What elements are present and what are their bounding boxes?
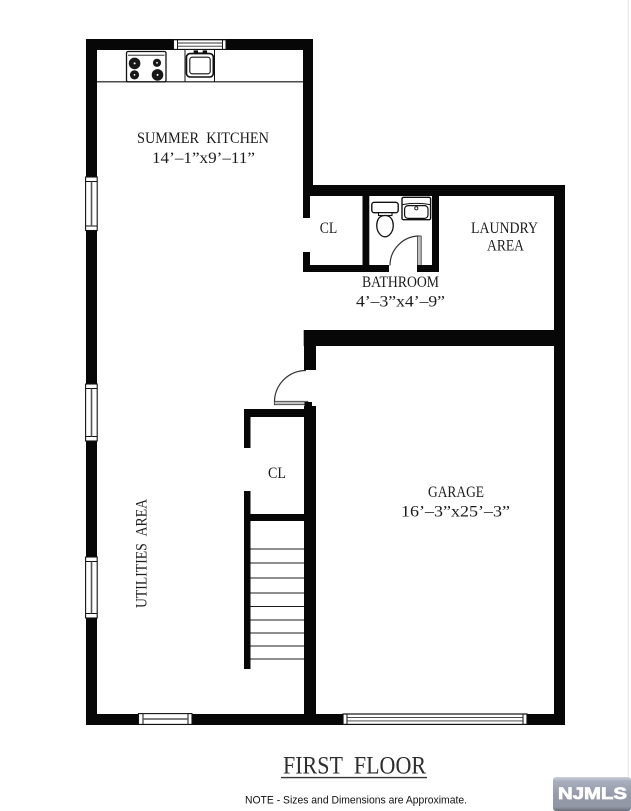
svg-text:CL: CL bbox=[320, 220, 338, 237]
svg-text:NOTE - Sizes and Dimensions ar: NOTE - Sizes and Dimensions are Approxim… bbox=[245, 795, 467, 807]
svg-text:LAUNDRY: LAUNDRY bbox=[471, 220, 538, 237]
svg-text:FIRST FLOOR: FIRST FLOOR bbox=[283, 753, 426, 780]
svg-text:NJMLS: NJMLS bbox=[558, 785, 627, 803]
svg-text:UTILITIES AREA: UTILITIES AREA bbox=[134, 498, 151, 608]
svg-text:BATHROOM: BATHROOM bbox=[362, 274, 439, 291]
svg-text:14’–1”x9’–11”: 14’–1”x9’–11” bbox=[152, 150, 255, 167]
svg-text:16’–3”x25’–3”: 16’–3”x25’–3” bbox=[401, 504, 510, 521]
svg-text:CL: CL bbox=[268, 465, 286, 482]
svg-text:SUMMER KITCHEN: SUMMER KITCHEN bbox=[137, 129, 269, 147]
svg-text:GARAGE: GARAGE bbox=[428, 484, 484, 501]
svg-text:4’–3”x4’–9”: 4’–3”x4’–9” bbox=[356, 294, 445, 311]
svg-text:AREA: AREA bbox=[487, 238, 525, 255]
